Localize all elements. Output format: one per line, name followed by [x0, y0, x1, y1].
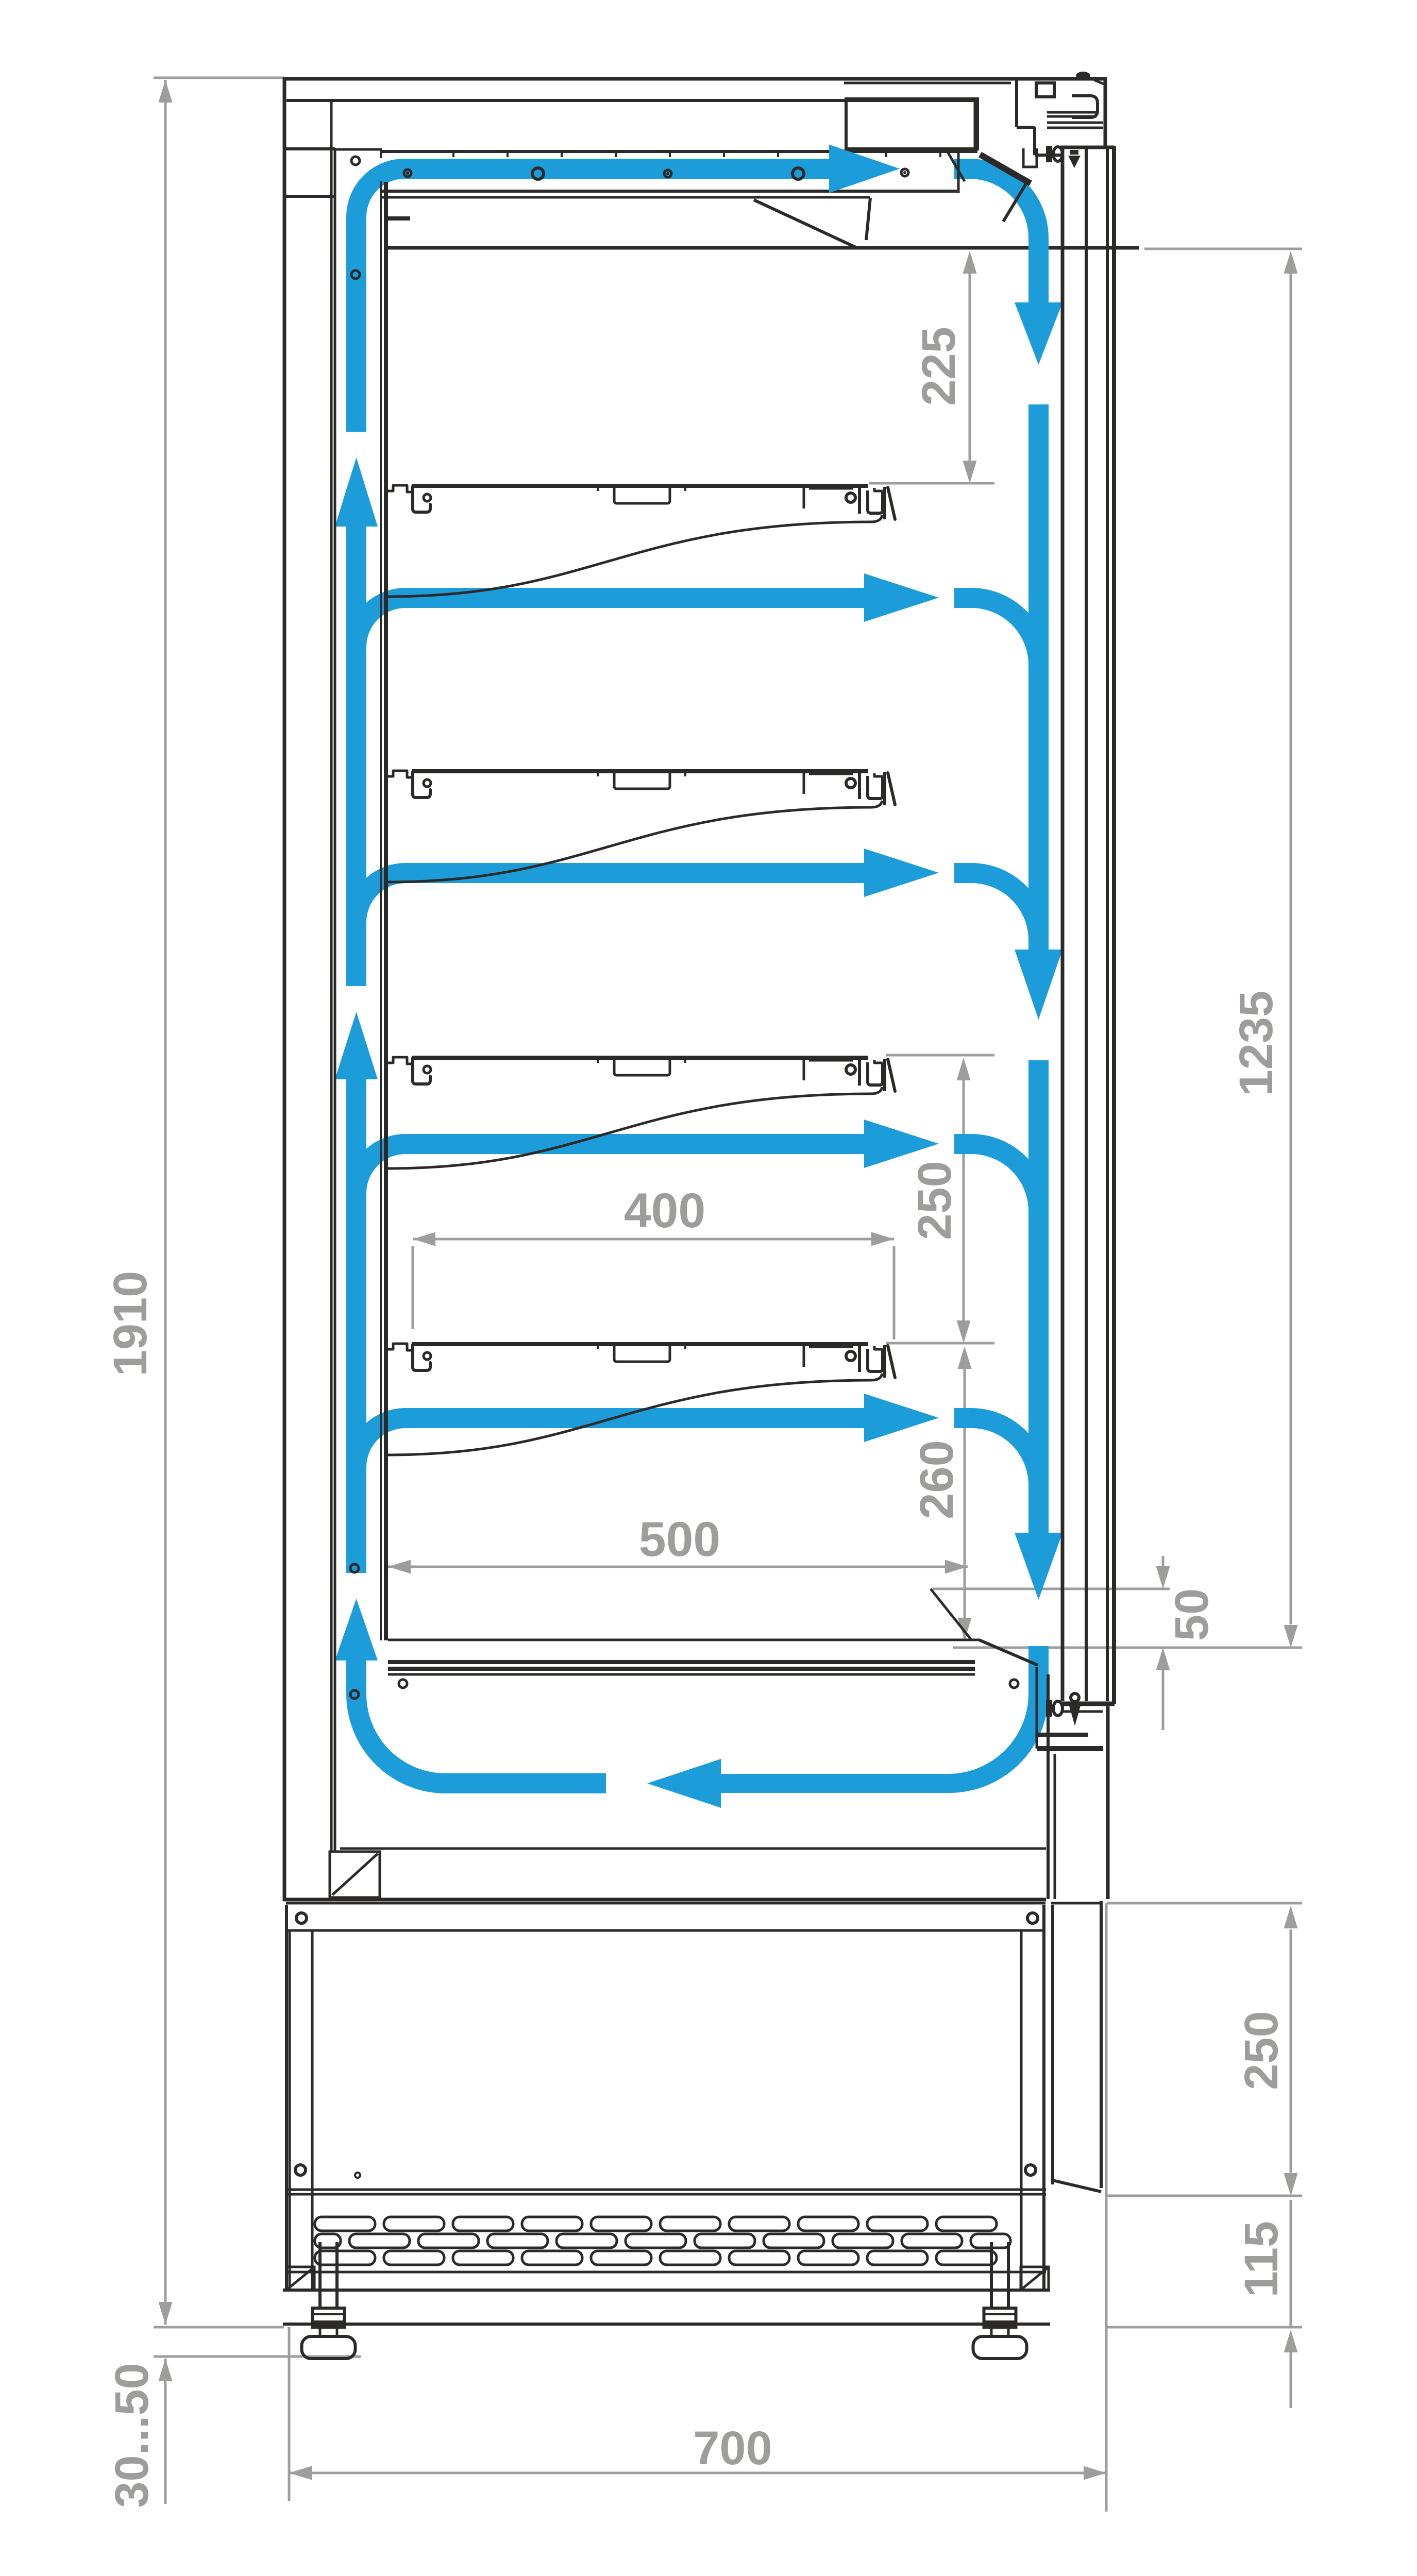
svg-text:30...50: 30...50 [106, 2363, 158, 2507]
svg-text:250: 250 [908, 1161, 961, 1240]
svg-text:400: 400 [624, 1183, 706, 1238]
svg-text:500: 500 [639, 1512, 721, 1567]
svg-text:50: 50 [1166, 1588, 1218, 1641]
svg-text:115: 115 [1235, 2221, 1288, 2297]
svg-text:1235: 1235 [1230, 991, 1283, 1096]
svg-text:700: 700 [693, 2422, 772, 2475]
svg-text:250: 250 [1235, 2011, 1288, 2090]
svg-text:1910: 1910 [104, 1271, 157, 1377]
svg-text:260: 260 [910, 1440, 963, 1519]
svg-text:225: 225 [913, 327, 965, 406]
